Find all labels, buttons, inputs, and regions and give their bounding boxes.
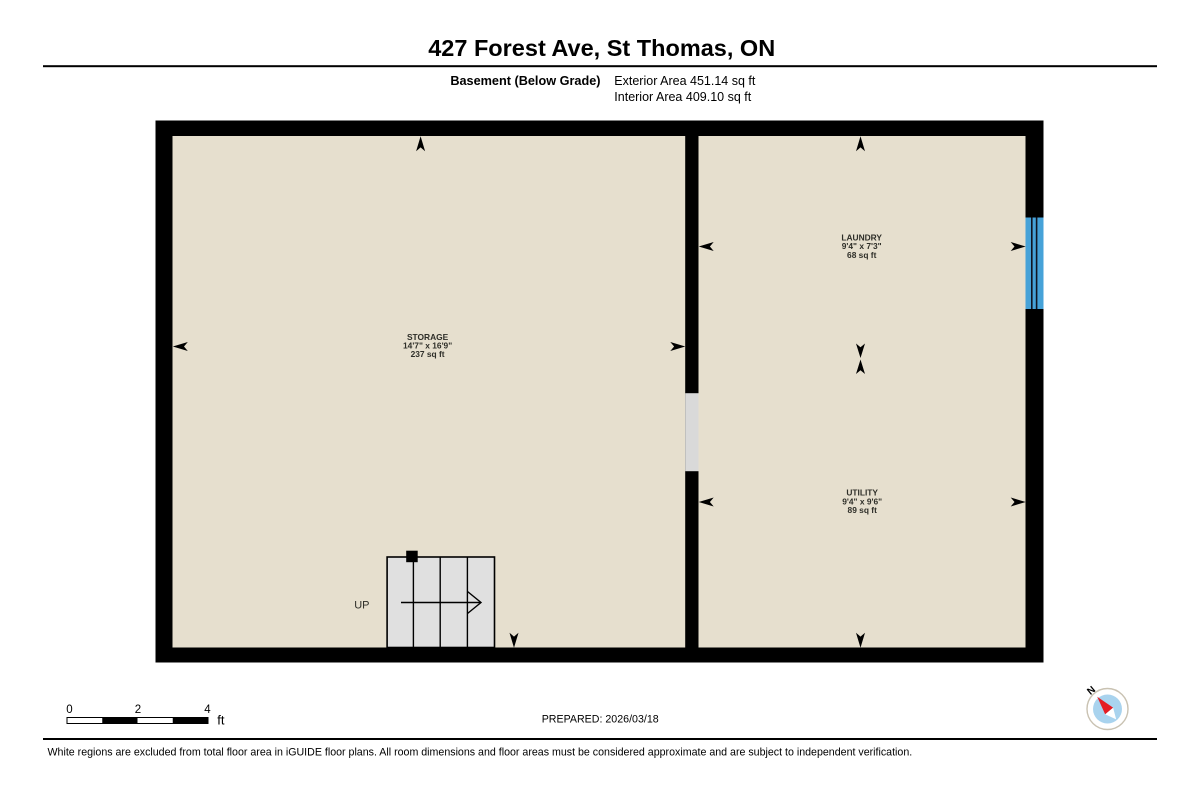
- svg-text:PREPARED: 2026/03/18: PREPARED: 2026/03/18: [542, 714, 659, 726]
- svg-text:ft: ft: [217, 713, 225, 728]
- svg-text:4: 4: [204, 704, 211, 716]
- svg-text:89 sq ft: 89 sq ft: [848, 505, 878, 515]
- svg-text:237 sq ft: 237 sq ft: [411, 349, 445, 359]
- svg-text:68 sq ft: 68 sq ft: [847, 250, 877, 260]
- svg-text:0: 0: [66, 704, 72, 716]
- svg-text:UP: UP: [354, 600, 369, 612]
- svg-text:427 Forest Ave, St Thomas, ON: 427 Forest Ave, St Thomas, ON: [428, 35, 775, 61]
- svg-text:Interior Area 409.10 sq ft: Interior Area 409.10 sq ft: [614, 90, 751, 104]
- svg-text:2: 2: [135, 704, 141, 716]
- svg-text:Basement (Below Grade): Basement (Below Grade): [450, 74, 600, 88]
- svg-text:White regions are excluded fro: White regions are excluded from total fl…: [48, 747, 913, 759]
- svg-text:Exterior Area 451.14 sq ft: Exterior Area 451.14 sq ft: [614, 74, 756, 88]
